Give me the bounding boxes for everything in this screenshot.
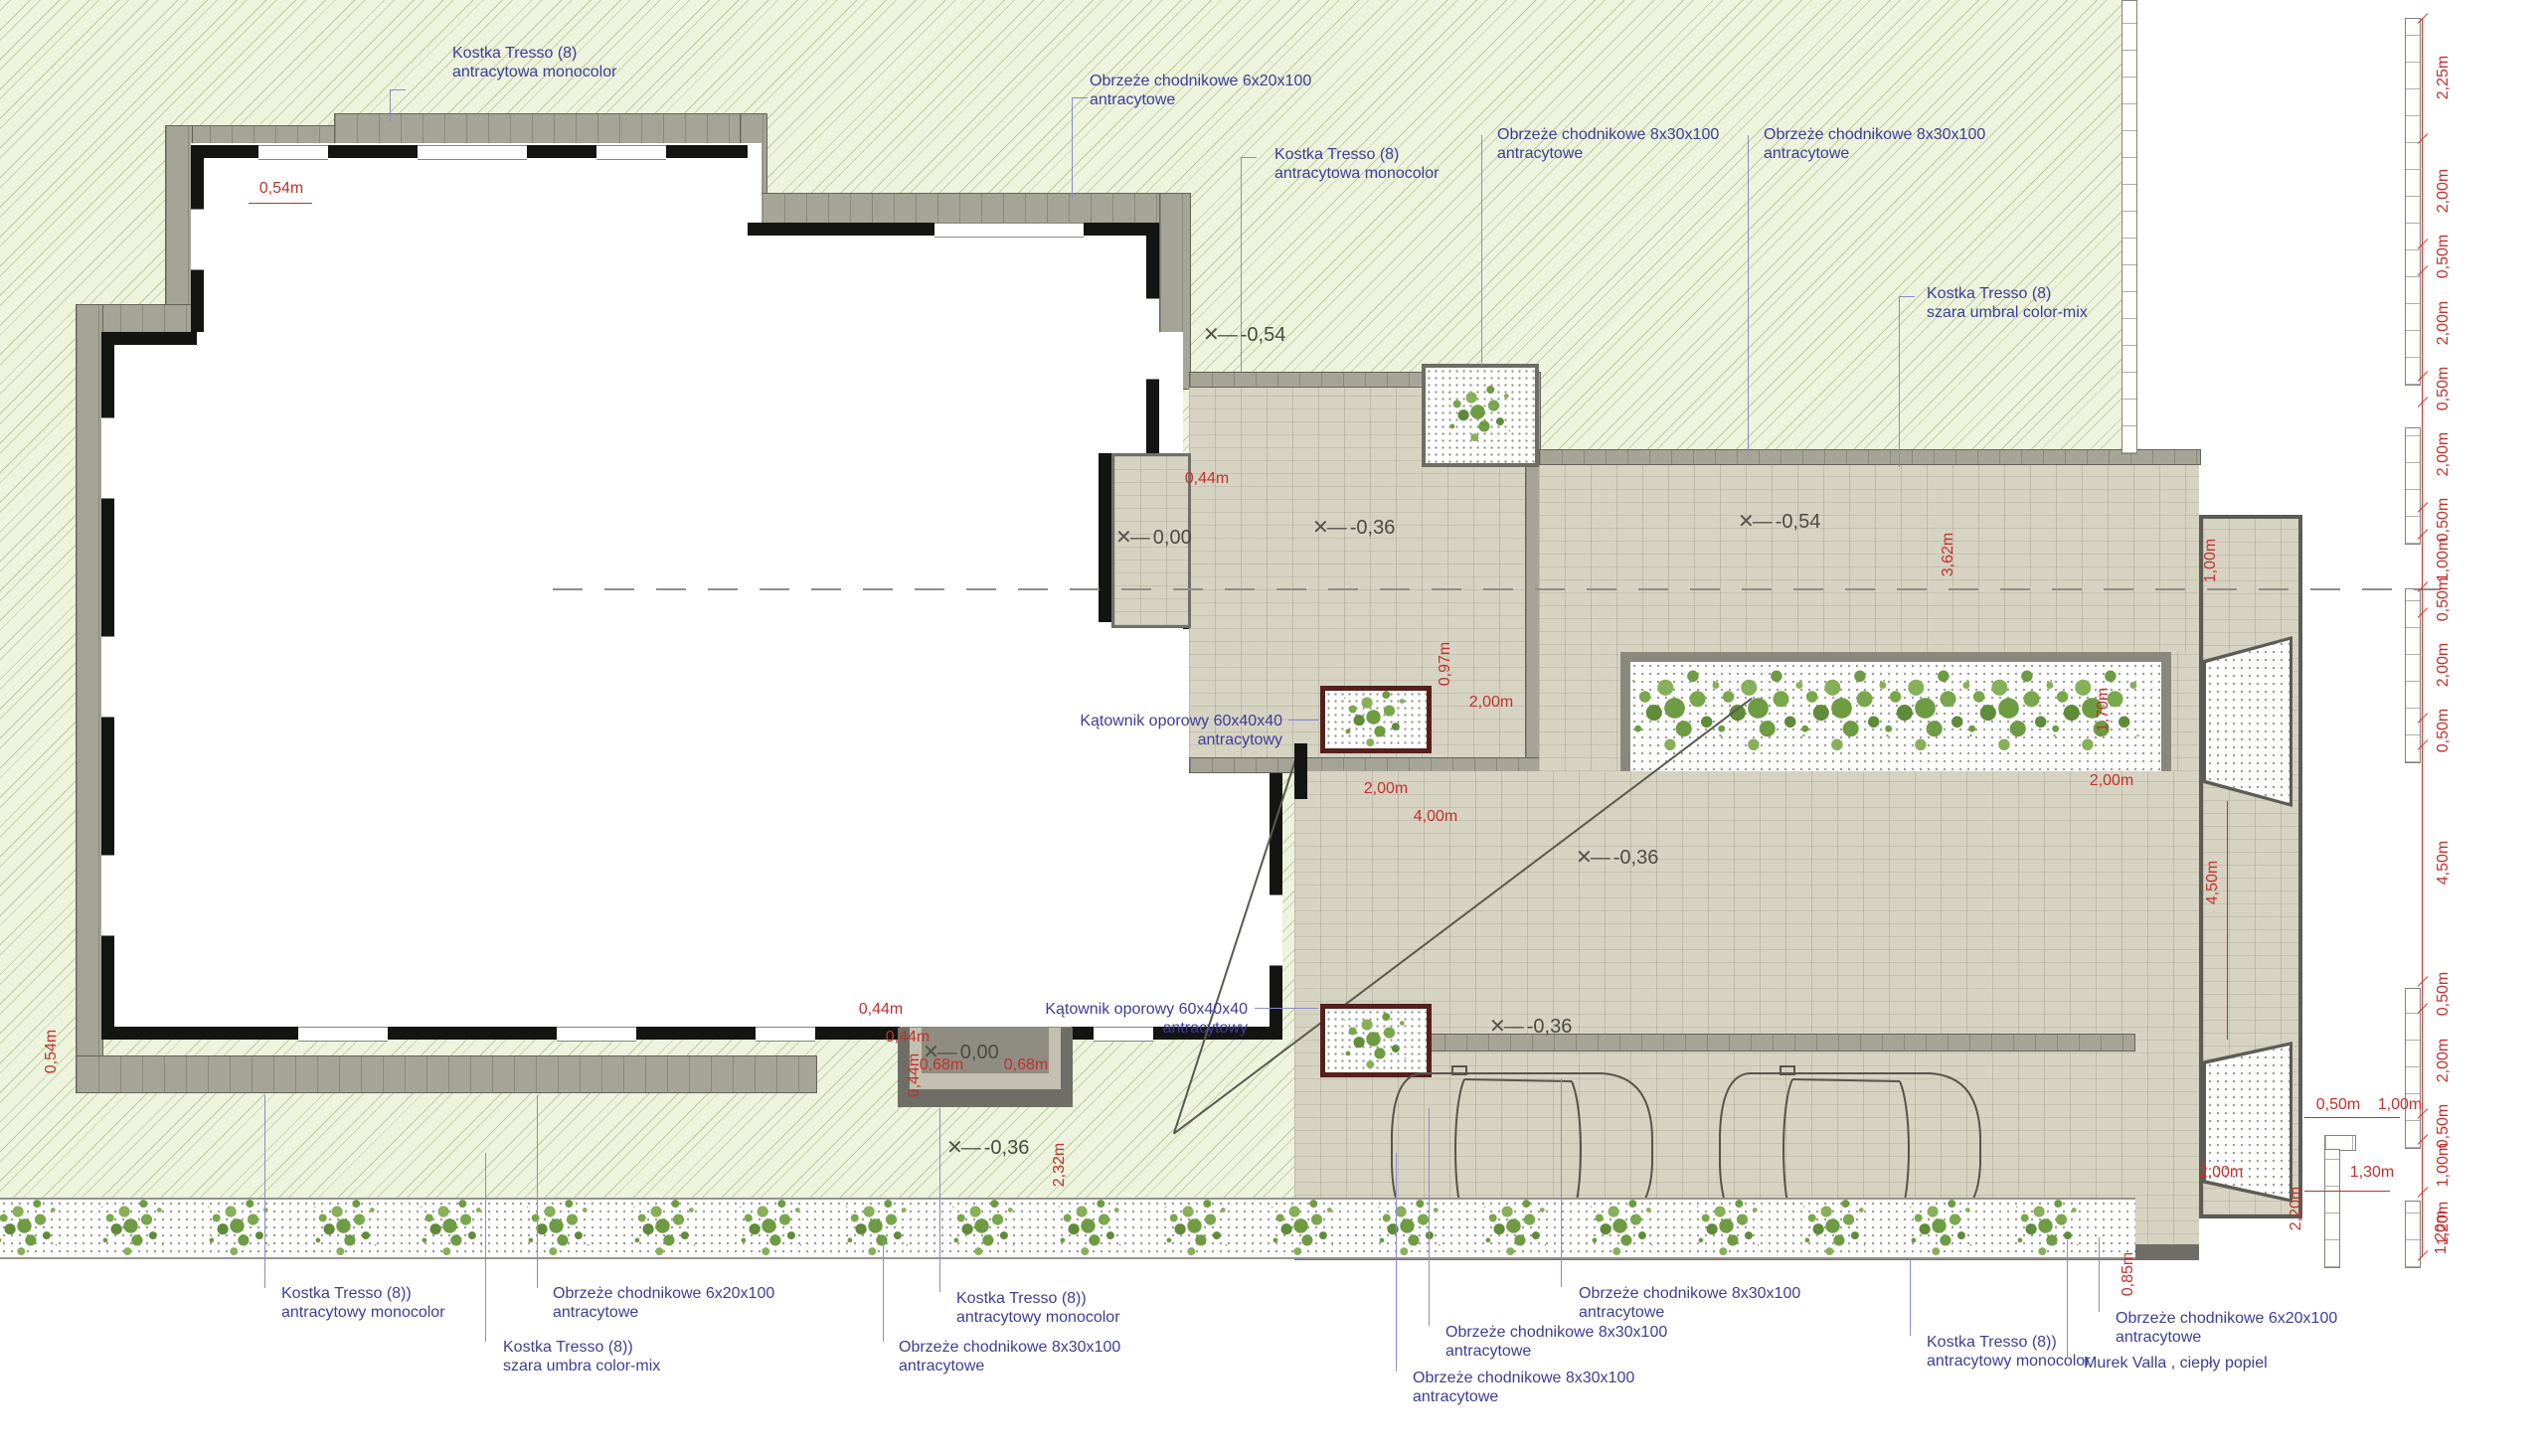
leader-line [1241, 157, 1257, 158]
window [756, 1027, 815, 1042]
level-value: -0,36 [1527, 1016, 1573, 1038]
material-label-line1: Obrzeże chodnikowe 8x30x100 [1497, 125, 1719, 144]
leader-line [1910, 1257, 1911, 1336]
leader-line [1481, 135, 1482, 366]
leader-line [485, 1153, 486, 1342]
material-label: Obrzeże chodnikowe 8x30x100antracytowe [1413, 1369, 1634, 1406]
bush-icon [1506, 1218, 1520, 1232]
walkway-band [740, 193, 1191, 225]
bush-icon [1664, 698, 1685, 719]
dimension-label: 0,85m [2120, 1252, 2137, 1296]
material-label: Kostka Tresso (8)antracytowa monocolor [1274, 145, 1439, 183]
material-label-line1: Kostka Tresso (8) [1927, 284, 2088, 303]
material-label-line2: antracytowe [1764, 144, 1985, 163]
material-label: Kostka Tresso (8))antracytowy monocolor [281, 1284, 445, 1322]
dimension-label: 3,62m [1940, 533, 1957, 576]
level-marker-symbol: ✕— [1115, 527, 1148, 549]
bush-icon [762, 1218, 775, 1232]
dimension-label: 1,70m [2095, 688, 2113, 731]
material-label: Obrzeże chodnikowe 8x30x100antracytowe [899, 1338, 1120, 1375]
level-value: -0,36 [984, 1137, 1030, 1159]
hedge-strip [0, 1198, 2135, 1259]
window [101, 417, 114, 499]
level-marker-symbol: ✕— [946, 1137, 979, 1159]
material-label: Obrzeże chodnikowe 6x20x100antracytowe [2116, 1309, 2337, 1347]
bush-icon [230, 1218, 244, 1232]
window [557, 1027, 636, 1042]
leader-line [1288, 720, 1318, 721]
leader-line [1072, 97, 1073, 199]
bush-icon [1400, 1218, 1414, 1232]
bush-icon [974, 1218, 988, 1232]
chain-dimension-label: 1,20m [2435, 1202, 2453, 1245]
bush-icon [1366, 710, 1380, 724]
dimension-label: 2,00m [2090, 772, 2133, 790]
material-label-line1: Obrzeże chodnikowe 8x30x100 [1413, 1369, 1634, 1387]
chain-dimension-label: 4,50m [2435, 841, 2453, 885]
level-value: -0,54 [1776, 511, 1821, 533]
chain-dimension-label: 2,00m [2435, 643, 2453, 687]
chain-dimension-label: 2,00m [2435, 1039, 2453, 1082]
side-path-paving [1539, 652, 1620, 771]
property-fence [2121, 0, 2137, 454]
material-label: Obrzeże chodnikowe 8x30x100antracytowe [1579, 1284, 1800, 1322]
material-label-line2: antracytowe [553, 1303, 774, 1322]
material-label: Obrzeże chodnikowe 8x30x100antracytowe [1764, 125, 1985, 163]
material-label: Murek Valla , ciepły popiel [2084, 1354, 2268, 1373]
window [258, 145, 328, 160]
leader-line [883, 1237, 884, 1342]
level-marker: ✕—-0,36 [946, 1135, 1029, 1160]
bush-icon [1915, 698, 1936, 719]
window [101, 636, 114, 718]
dimension-label: 0,68m [920, 1056, 963, 1074]
leader-line [1899, 296, 1900, 467]
level-marker-symbol: ✕— [1312, 517, 1345, 539]
leader-line [1429, 1108, 1430, 1326]
level-marker-symbol: ✕— [1489, 1016, 1522, 1038]
material-label-line2: antracytowe [1445, 1342, 1667, 1361]
bush-icon [1612, 1218, 1626, 1232]
chain-dimension-label: 2,00m [2435, 169, 2453, 213]
window [1146, 298, 1159, 380]
material-label-line1: Kostka Tresso (8) [452, 44, 616, 63]
bush-icon [1470, 404, 1484, 418]
dimension-label: 2,20m [2288, 1187, 2305, 1230]
material-label: Kostka Tresso (8))antracytowy monocolor [956, 1289, 1120, 1327]
leader-line [1561, 1078, 1562, 1287]
material-label-line1: Obrzeże chodnikowe 8x30x100 [1579, 1284, 1800, 1303]
material-label-line2: szara umbral color-mix [1927, 303, 2088, 322]
window [934, 223, 1084, 238]
material-label-line2: antracytowe [1497, 144, 1719, 163]
chain-dimension-label: 0,50m [2435, 577, 2453, 621]
leader-line [537, 1095, 538, 1288]
window [101, 855, 114, 936]
material-label-line2: antracytowy monocolor [1927, 1352, 2091, 1371]
leader-line [1396, 1153, 1397, 1372]
material-label-line1: Kątownik oporowy 60x40x40 [959, 1000, 1248, 1019]
material-label-line2: antracytowy monocolor [281, 1303, 445, 1322]
material-label: Kostka Tresso (8))szara umbra color-mix [503, 1338, 660, 1375]
building-interior [191, 143, 762, 332]
chain-dimension-label: 0,50m [2435, 1104, 2453, 1148]
level-value: -0,36 [1613, 847, 1659, 869]
dimension-label: 2,32m [1051, 1143, 1069, 1187]
planting-bed [1620, 652, 2171, 789]
bush-icon [1932, 1218, 1946, 1232]
building-wall [1294, 743, 1307, 799]
bush-icon [2038, 1218, 2052, 1232]
dimension-line [2227, 801, 2228, 1040]
planter-box [1320, 686, 1432, 753]
leader-line [2099, 1237, 2100, 1312]
building-interior [101, 332, 1183, 1040]
chain-dimension-label: 0,50m [2435, 367, 2453, 410]
dimension-label: 0,44m [1185, 470, 1229, 488]
chain-dimension-label: 2,00m [2435, 301, 2453, 345]
level-marker-symbol: ✕— [1576, 847, 1609, 869]
material-label: Obrzeże chodnikowe 6x20x100antracytowe [553, 1284, 774, 1322]
axis-line [553, 588, 2441, 590]
chain-dimension-label: 2,25m [2435, 56, 2453, 99]
bush-icon [868, 1218, 882, 1232]
material-label-line2: antracytowa monocolor [1274, 164, 1439, 183]
window [418, 145, 527, 160]
bush-icon [1366, 1032, 1380, 1046]
material-label-line2: antracytowe [1413, 1387, 1634, 1406]
level-marker: ✕—-0,54 [1738, 509, 1820, 534]
site-plan: Kostka Tresso (8)antracytowa monocolor O… [0, 0, 2545, 1456]
gate-splay [2206, 640, 2290, 803]
dimension-label: 0,54m [259, 180, 303, 198]
dimension-line [2304, 1191, 2390, 1192]
material-label: Kątownik oporowy 60x40x40antracytowy [959, 1000, 1248, 1038]
material-label-line2: antracytowy monocolor [956, 1308, 1120, 1327]
material-label: Obrzeże chodnikowe 8x30x100antracytowe [1497, 125, 1719, 163]
material-label: Obrzeże chodnikowe 6x20x100antracytowe [1090, 72, 1311, 109]
planter-box [1422, 364, 1539, 467]
leader-line [1072, 97, 1088, 98]
dimension-label: 0,44m [859, 1001, 903, 1019]
level-marker: ✕—-0,36 [1312, 515, 1395, 540]
level-marker: ✕—0,00 [1115, 525, 1192, 550]
window [298, 1027, 388, 1042]
leader-line [390, 89, 391, 121]
bush-icon [655, 1218, 669, 1232]
material-label-line2: antracytowy [959, 1019, 1248, 1038]
bush-icon [17, 1218, 31, 1232]
chain-dimension-label: 2,00m [2435, 432, 2453, 476]
level-value: 0,00 [1153, 527, 1192, 549]
leader-line [1748, 135, 1749, 451]
material-label: Kostka Tresso (8)szara umbral color-mix [1927, 284, 2088, 322]
dimension-label: 2,00m [2199, 1164, 2243, 1182]
material-label-line2: szara umbra color-mix [503, 1357, 660, 1375]
level-value: 0,00 [960, 1042, 999, 1063]
dimension-label: 1,00m [2202, 539, 2220, 582]
dimension-label: 0,50m [2316, 1096, 2360, 1114]
bush-icon [1187, 1218, 1201, 1232]
walkway-band [334, 113, 763, 145]
material-label-line2: antracytowe [1090, 90, 1311, 109]
dimension-label: 4,50m [2204, 861, 2222, 904]
dimension-label: 4,00m [1414, 808, 1457, 826]
side-path-paving [1539, 463, 2199, 658]
bush-icon [1719, 1218, 1733, 1232]
level-marker-symbol: ✕— [1738, 511, 1771, 533]
dimension-line [249, 203, 312, 204]
dimension-label: 0,54m [43, 1030, 61, 1073]
material-label-line2: antracytowa monocolor [452, 63, 616, 81]
material-label-line1: Obrzeże chodnikowe 8x30x100 [1764, 125, 1985, 144]
dimension-label: 0,97m [1437, 642, 1454, 686]
window [1270, 894, 1282, 966]
leader-line [264, 1095, 265, 1288]
material-label: Kątownik oporowy 60x40x40antracytowy [994, 712, 1282, 749]
bush-icon [1825, 1218, 1839, 1232]
material-label: Kostka Tresso (8))antracytowy monocolor [1927, 1333, 2091, 1371]
side-path-edge [1539, 449, 2201, 465]
material-label-line1: Obrzeże chodnikowe 6x20x100 [553, 1284, 774, 1303]
bush-icon [1748, 698, 1769, 719]
building-wall [1099, 453, 1111, 622]
level-marker: ✕—-0,36 [1489, 1014, 1572, 1039]
dimension-line [2304, 1117, 2400, 1118]
material-label-line1: Kostka Tresso (8)) [1927, 1333, 2091, 1352]
chain-dimension-label: 1,00m [2435, 538, 2453, 581]
murek-wall [2324, 1149, 2340, 1268]
dimension-line [2422, 18, 2423, 1257]
material-label-line1: Kostka Tresso (8)) [281, 1284, 445, 1303]
bush-icon [336, 1218, 350, 1232]
bush-icon [549, 1218, 563, 1232]
level-marker: ✕—-0,36 [1576, 845, 1658, 870]
window [191, 209, 204, 270]
property-fence [2405, 427, 2421, 545]
window [596, 145, 666, 160]
material-label-line2: antracytowe [2116, 1328, 2337, 1347]
material-label-line1: Obrzeże chodnikowe 6x20x100 [2116, 1309, 2337, 1328]
walkway-band [76, 304, 103, 1093]
dimension-label: 1,00m [2378, 1096, 2422, 1114]
material-label-line2: antracytowe [1579, 1303, 1800, 1322]
material-label-line1: Kostka Tresso (8) [1274, 145, 1439, 164]
bush-icon [1831, 698, 1852, 719]
material-label-line1: Kątownik oporowy 60x40x40 [994, 712, 1282, 730]
bush-icon [1998, 698, 2019, 719]
dimension-label: 1,30m [2350, 1164, 2394, 1182]
dimension-label: 2,00m [1364, 780, 1408, 798]
chain-dimension-label: 0,50m [2435, 498, 2453, 542]
material-label-line1: Murek Valla , ciepły popiel [2084, 1354, 2268, 1373]
leader-line [1255, 1008, 1318, 1009]
building-wall [101, 332, 197, 345]
dimension-label: 2,00m [1469, 694, 1513, 712]
material-label-line2: antracytowe [899, 1357, 1120, 1375]
dimension-label: 0,44m [906, 1053, 924, 1097]
material-label-line1: Kostka Tresso (8)) [503, 1338, 660, 1357]
material-label-line1: Obrzeże chodnikowe 8x30x100 [899, 1338, 1120, 1357]
material-label-line1: Kostka Tresso (8)) [956, 1289, 1120, 1308]
bush-icon [442, 1218, 456, 1232]
level-marker: ✕—-0,54 [1203, 322, 1285, 347]
level-marker-symbol: ✕— [1203, 324, 1236, 346]
material-label-line2: antracytowy [994, 730, 1282, 749]
material-label: Kostka Tresso (8)antracytowa monocolor [452, 44, 616, 81]
material-label-line1: Obrzeże chodnikowe 6x20x100 [1090, 72, 1311, 90]
bush-icon [1293, 1218, 1307, 1232]
chain-dimension-label: 1,00m [2435, 1143, 2453, 1187]
chain-dimension-label: 0,50m [2435, 972, 2453, 1016]
property-fence [2405, 18, 2421, 386]
material-label-line1: Obrzeże chodnikowe 8x30x100 [1445, 1323, 1667, 1342]
dimension-label: 0,68m [1004, 1056, 1048, 1074]
material-label: Obrzeże chodnikowe 8x30x100antracytowe [1445, 1323, 1667, 1361]
leader-line [939, 1108, 940, 1292]
leader-line [390, 89, 406, 90]
dimension-label: 0,44m [886, 1029, 930, 1047]
level-value: -0,54 [1241, 324, 1286, 346]
walkway-band [76, 1055, 817, 1093]
leader-line [1899, 296, 1915, 297]
bush-icon [1081, 1218, 1095, 1232]
chain-dimension-label: 0,50m [2435, 709, 2453, 752]
chain-dimension-label: 0,50m [2435, 235, 2453, 278]
level-value: -0,36 [1350, 517, 1396, 539]
bush-icon [123, 1218, 137, 1232]
